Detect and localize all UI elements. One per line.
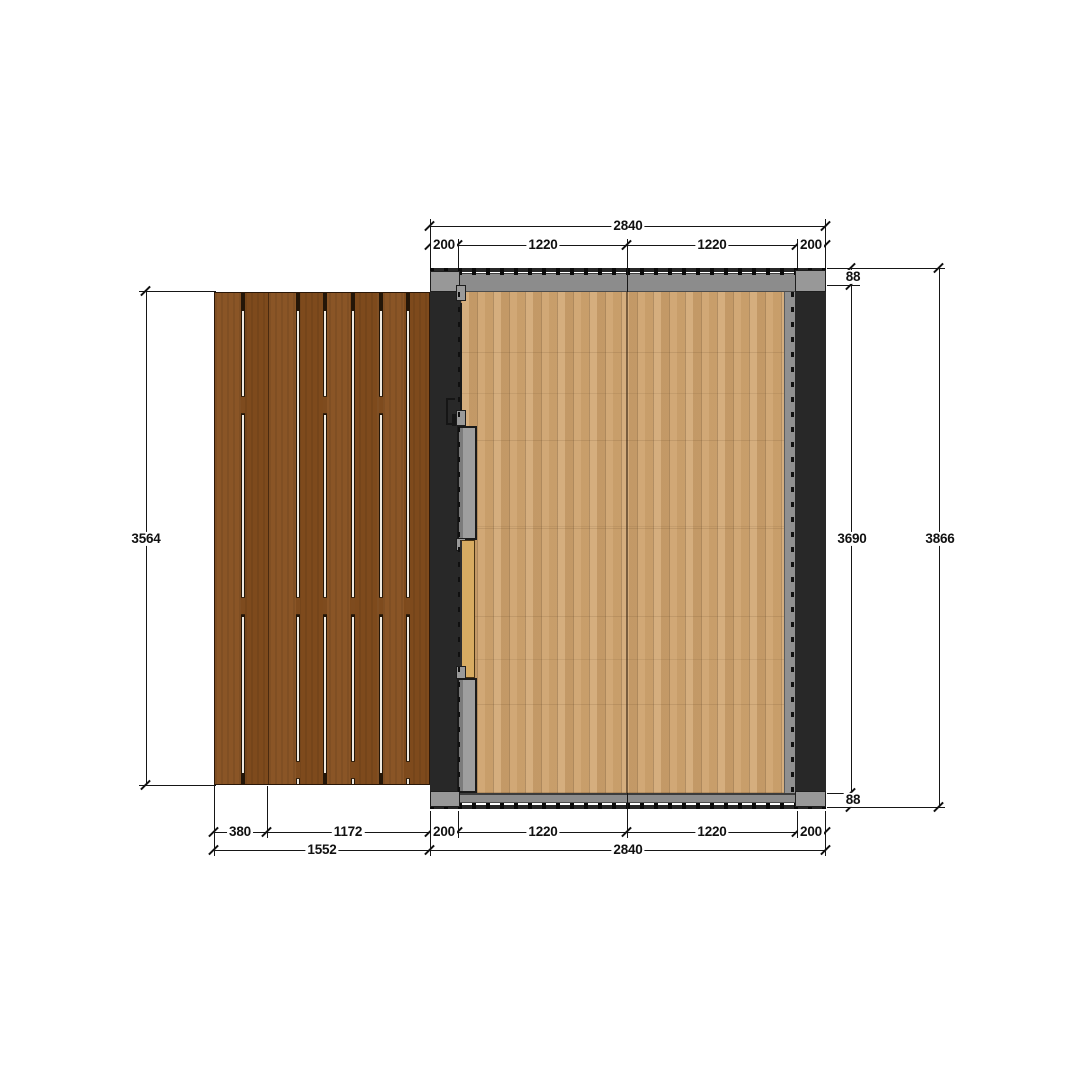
glazed-wall-bottom bbox=[430, 793, 826, 803]
right-trim-fixing-marks bbox=[791, 292, 794, 793]
corner-post-top-right bbox=[795, 270, 826, 292]
dim-ext-line bbox=[827, 285, 860, 286]
deck-terrace bbox=[214, 292, 430, 785]
dim-line-bottom-segments bbox=[214, 832, 826, 833]
deck-board-gap bbox=[379, 293, 383, 784]
dim-label-deck-seg-2: 1172 bbox=[332, 825, 365, 839]
dim-label-bottom-seg-3: 1220 bbox=[695, 825, 728, 839]
deck-gap-highlight bbox=[380, 293, 382, 784]
dim-ext-line bbox=[458, 811, 459, 838]
deck-board-joint bbox=[351, 761, 355, 779]
dim-label-top-seg-4: 200 bbox=[798, 238, 824, 252]
deck-board-joint bbox=[351, 597, 355, 615]
deck-board-gap bbox=[296, 293, 300, 784]
deck-board-gap bbox=[406, 293, 410, 784]
dim-line-top-segments bbox=[430, 245, 826, 246]
deck-board-joint bbox=[296, 597, 300, 615]
dim-label-inner-height: 3690 bbox=[835, 532, 868, 546]
dim-label-top-total: 2840 bbox=[611, 219, 644, 233]
dim-label-deck-total: 1552 bbox=[305, 843, 338, 857]
deck-gap-highlight bbox=[407, 293, 409, 784]
dim-label-top-seg-3: 1220 bbox=[695, 238, 728, 252]
deck-board-joint bbox=[323, 396, 327, 414]
deck-board-seam bbox=[268, 293, 269, 784]
dim-ext-line bbox=[827, 807, 945, 808]
deck-board-joint bbox=[406, 761, 410, 779]
dim-label-deck-height: 3564 bbox=[129, 532, 162, 546]
deck-gap-highlight bbox=[242, 293, 244, 784]
deck-board-joint bbox=[379, 396, 383, 414]
deck-board-joint bbox=[296, 761, 300, 779]
floor-center-seam bbox=[626, 292, 628, 793]
building-plan bbox=[430, 268, 826, 809]
dim-ext-line bbox=[139, 291, 216, 292]
deck-board-gap bbox=[323, 293, 327, 784]
interior-wood-floor bbox=[461, 292, 784, 793]
corner-post-bottom-right bbox=[795, 791, 826, 807]
deck-gap-highlight bbox=[324, 293, 326, 784]
dim-label-bottom-seg-4: 200 bbox=[798, 825, 824, 839]
dim-label-offset-bottom: 88 bbox=[844, 793, 863, 807]
deck-board-joint bbox=[241, 396, 245, 414]
dim-label-total-height: 3866 bbox=[923, 532, 956, 546]
dim-label-bottom-total: 2840 bbox=[611, 843, 644, 857]
dim-ext-line bbox=[139, 785, 216, 786]
door-track-fixing-marks bbox=[458, 292, 460, 793]
dim-label-top-seg-2: 1220 bbox=[526, 238, 559, 252]
floor-plan-canvas: 2840 200 1220 1220 200 380 1172 200 1220… bbox=[0, 0, 1080, 1080]
dim-ext-line bbox=[827, 268, 945, 269]
sliding-door-panel-upper bbox=[457, 426, 477, 540]
glazed-wall-top bbox=[430, 273, 826, 292]
right-wall bbox=[795, 292, 826, 793]
deck-board-gap bbox=[351, 293, 355, 784]
dim-label-bottom-seg-1: 200 bbox=[431, 825, 457, 839]
door-opening-threshold bbox=[460, 540, 475, 678]
dim-ext-line bbox=[627, 239, 628, 292]
dim-label-deck-seg-1: 380 bbox=[227, 825, 253, 839]
deck-board-joint bbox=[406, 597, 410, 615]
sliding-door-panel-lower bbox=[457, 678, 477, 793]
deck-board-gap bbox=[241, 293, 245, 784]
corner-post-bottom-left bbox=[430, 791, 460, 807]
dim-label-bottom-seg-2: 1220 bbox=[526, 825, 559, 839]
deck-gap-highlight bbox=[297, 293, 299, 784]
deck-board-joint bbox=[323, 597, 327, 615]
deck-board-joint bbox=[241, 597, 245, 615]
wall-tick-strip-bottom bbox=[430, 803, 826, 809]
door-track bbox=[460, 303, 462, 426]
dim-label-top-seg-1: 200 bbox=[431, 238, 457, 252]
deck-gap-highlight bbox=[352, 293, 354, 784]
deck-board-joint bbox=[379, 597, 383, 615]
dim-label-offset-top: 88 bbox=[844, 270, 863, 284]
wall-tick-strip-top bbox=[430, 268, 826, 275]
